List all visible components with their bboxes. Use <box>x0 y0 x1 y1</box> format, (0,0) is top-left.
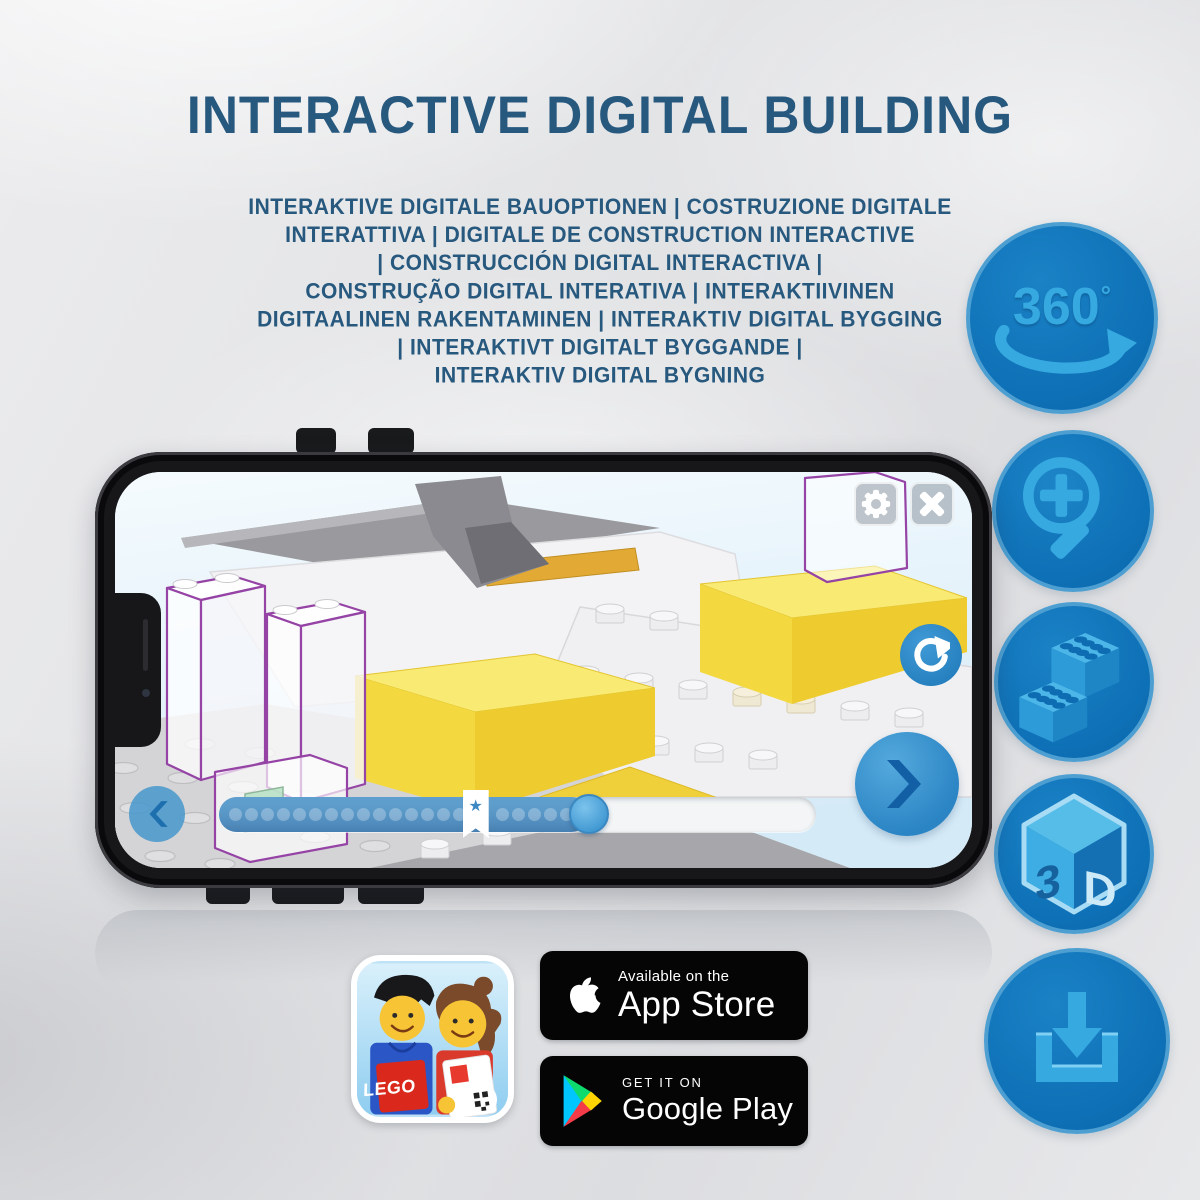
slider-thumb[interactable] <box>569 794 609 834</box>
apple-logo-icon <box>560 970 604 1022</box>
subtitle-line: | INTERAKTIVT DIGITALT BYGGANDE | <box>90 334 1110 362</box>
phone-side-button <box>296 428 336 454</box>
previous-step-button[interactable] <box>129 786 185 842</box>
speaker-slit <box>143 619 148 671</box>
chevron-left-icon <box>142 799 172 829</box>
app-store-tagline: Available on the <box>618 968 775 986</box>
app-store-title: App Store <box>618 986 775 1024</box>
subtitle-multilingual: INTERAKTIVE DIGITALE BAUOPTIONEN | COSTR… <box>90 193 1110 390</box>
subtitle-line: DIGITAALINEN RAKENTAMINEN | INTERAKTIV D… <box>90 306 1110 334</box>
build-progress-slider[interactable]: ★ <box>219 797 816 832</box>
close-button[interactable] <box>910 482 954 526</box>
chevron-right-icon <box>879 756 935 812</box>
google-play-triangle-icon <box>556 1071 608 1131</box>
magnifier-plus-icon <box>992 430 1154 592</box>
subtitle-line: | CONSTRUCCIÓN DIGITAL INTERACTIVA | <box>90 249 1110 277</box>
cube-3d-icon: 3 D <box>994 774 1154 934</box>
gear-icon <box>861 489 891 519</box>
close-x-icon <box>918 490 946 518</box>
subtitle-line: INTERATTIVA | DIGITALE DE CONSTRUCTION I… <box>90 221 1110 249</box>
cube-d-glyph: D <box>1083 861 1116 919</box>
rotate-view-button[interactable] <box>900 624 962 686</box>
lego-bricks-icon <box>994 602 1154 762</box>
rotate-arrow-icon <box>912 636 950 674</box>
app-screen: ★ <box>115 472 972 868</box>
google-play-title: Google Play <box>622 1091 793 1127</box>
app-store-badge[interactable]: Available on the App Store <box>540 951 808 1040</box>
rotate-360-icon: 360° <box>966 222 1158 414</box>
cube-3-glyph: 3 <box>1035 853 1061 910</box>
subtitle-line: INTERAKTIVE DIGITALE BAUOPTIONEN | COSTR… <box>90 193 1110 221</box>
settings-button[interactable] <box>854 482 898 526</box>
download-tray-icon <box>984 948 1170 1134</box>
marketing-poster: INTERACTIVE DIGITAL BUILDING INTERAKTIVE… <box>0 0 1200 1200</box>
subtitle-line: INTERAKTIV DIGITAL BYGNING <box>90 362 1110 390</box>
phone-notch <box>115 593 161 747</box>
subtitle-line: CONSTRUÇÃO DIGITAL INTERATIVA | INTERAKT… <box>90 277 1110 305</box>
phone-mockup: ★ <box>95 452 992 888</box>
slider-fill <box>219 797 589 832</box>
page-title: INTERACTIVE DIGITAL BUILDING <box>0 84 1200 145</box>
camera-dot <box>142 689 150 697</box>
lego-app-icon[interactable]: LEGO <box>351 955 514 1123</box>
google-play-tagline: GET IT ON <box>622 1075 793 1091</box>
phone-side-button <box>368 428 414 454</box>
slider-dots <box>229 797 573 832</box>
next-step-button[interactable] <box>855 732 959 836</box>
google-play-badge[interactable]: GET IT ON Google Play <box>540 1056 808 1146</box>
orbit-arrow-icon <box>987 325 1137 381</box>
